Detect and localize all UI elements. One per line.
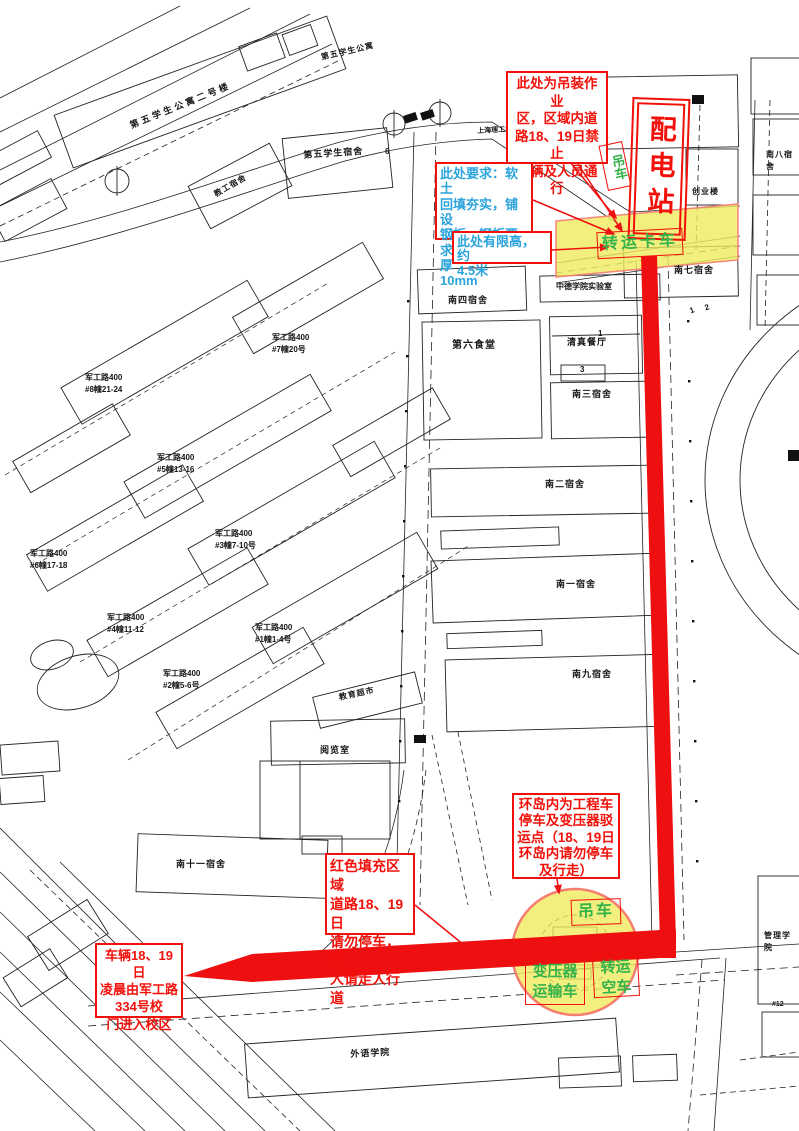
transformer-truck-label: 变压器 运输车	[525, 961, 585, 1005]
power-distribution-station-inner-box: 配电站	[633, 102, 686, 236]
callout-height-limit: 此处有限高，约 4.5米	[452, 231, 552, 264]
empty-transfer-truck-label: 转运 空车	[592, 956, 640, 998]
callout-red-fill-notice: 红色填充区域 道路18、19日 请勿停车，行 人请走人行道	[325, 853, 415, 935]
crane-bottom-label: 吊车	[571, 898, 622, 926]
callout-vehicle-entry: 车辆18、19日 凌晨由军工路 334号校 门进入校区	[95, 943, 183, 1018]
power-distribution-station-box: 配电站	[628, 97, 691, 241]
callout-ground-requirement: 此处要求：软土 回填夯实，铺设 钢板，钢板要 求：8米*12米厚 10mm	[435, 162, 533, 240]
transfer-truck-label: 转运卡车	[596, 228, 683, 259]
callout-roundabout-notice: 环岛内为工程车 停车及变压器驳 运点（18、19日 环岛内请勿停车 及行走）	[512, 793, 620, 879]
power-distribution-station-label: 配电站	[644, 115, 675, 224]
callout-hoisting-zone: 此处为吊装作业 区，区域内道 路18、19日禁止 车辆及人员通行	[506, 71, 608, 164]
route-highlight-vertical	[641, 256, 676, 944]
campus-construction-route-map: 第五学生公寓二号楼 第五学生公寓 第五学生宿舍 教工宿舍 上海理工大学 创业楼 …	[0, 0, 799, 1131]
